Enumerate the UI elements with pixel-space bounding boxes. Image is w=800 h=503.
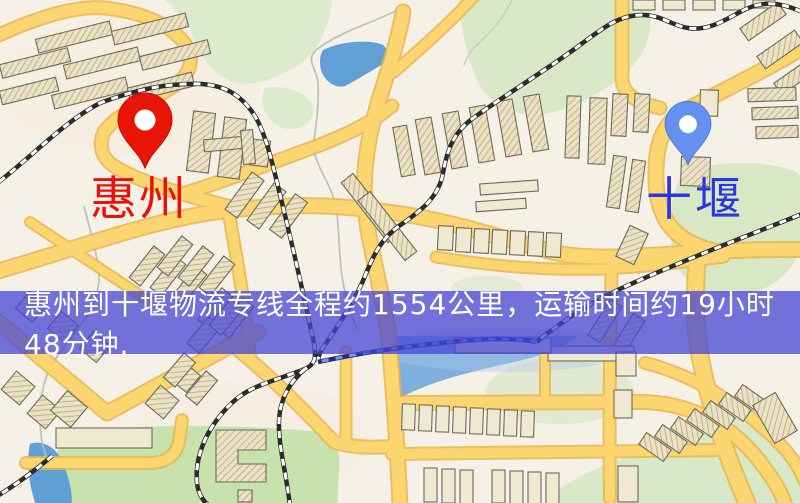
route-info-banner: 惠州到十堰物流专线全程约1554公里，运输时间约19小时48分钟. [0, 291, 800, 354]
building [238, 490, 252, 502]
building [455, 228, 471, 253]
building [437, 226, 453, 251]
building [521, 411, 535, 437]
building [633, 0, 655, 10]
building [614, 390, 632, 418]
building [527, 232, 543, 257]
building [442, 469, 455, 503]
map-canvas[interactable] [0, 0, 800, 503]
building [565, 96, 581, 158]
building [453, 407, 467, 433]
building [460, 470, 473, 503]
building [402, 404, 416, 430]
building [436, 406, 450, 432]
building [510, 471, 523, 503]
building [723, 0, 745, 10]
building [611, 94, 628, 137]
origin-label: 惠州 [90, 176, 188, 223]
map-screenshot: 惠州 十堰 惠州到十堰物流专线全程约1554公里，运输时间约19小时48分钟. [0, 0, 800, 503]
building [756, 125, 798, 138]
building [693, 0, 715, 10]
building [546, 473, 559, 503]
building [487, 409, 501, 435]
building [752, 106, 798, 120]
building [56, 428, 152, 448]
building [470, 408, 484, 434]
building [424, 468, 437, 502]
building [509, 231, 525, 256]
route-info-text: 惠州到十堰物流专线全程约1554公里，运输时间约19小时48分钟. [24, 283, 800, 363]
building [491, 230, 507, 255]
destination-label: 十堰 [646, 176, 744, 222]
building [618, 466, 638, 502]
building [588, 98, 607, 165]
building [492, 470, 505, 503]
building [241, 130, 256, 165]
building [748, 87, 796, 102]
building [419, 405, 433, 431]
building [633, 94, 650, 133]
building [528, 472, 541, 503]
building [663, 0, 685, 10]
building [504, 410, 518, 436]
building [545, 233, 561, 258]
building [473, 229, 489, 254]
